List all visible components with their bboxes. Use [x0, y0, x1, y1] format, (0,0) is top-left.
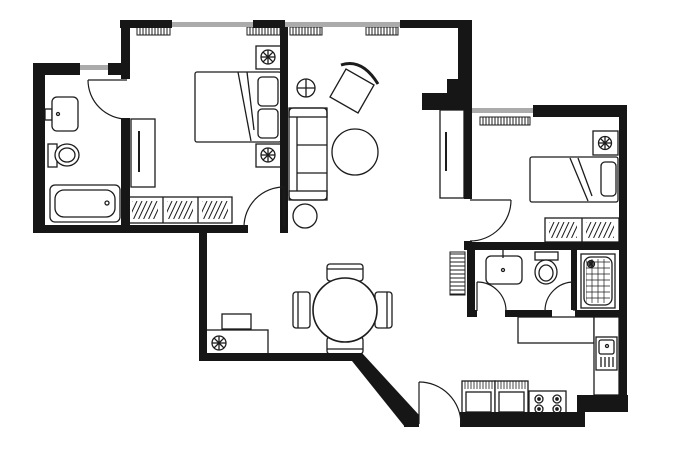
- floor-lamp: [297, 79, 315, 97]
- bathroom1-sink: [45, 97, 78, 131]
- bathroom2-toilet: [535, 252, 558, 284]
- sofa: [289, 108, 327, 200]
- stove: [529, 391, 566, 415]
- hall-wardrobe: [440, 110, 464, 198]
- master-nightstand-lamp-bottom: [256, 144, 281, 167]
- floor-plan: [0, 0, 675, 450]
- master-nightstand-lamp-top: [256, 46, 281, 69]
- master-bed: [195, 72, 281, 142]
- bathroom1-toilet: [48, 144, 79, 167]
- side-table: [293, 204, 317, 228]
- shower: [581, 254, 615, 308]
- bedroom2-bed: [530, 157, 618, 202]
- doors: [88, 80, 574, 424]
- desk: [206, 314, 268, 355]
- hall-radiator: [450, 252, 465, 295]
- bathroom2-sink: [486, 250, 522, 284]
- floor-plan-stage: [0, 0, 675, 450]
- bedroom2-closet: [542, 218, 626, 242]
- coffee-table: [332, 129, 378, 175]
- bedroom2-nightstand-lamp: [593, 131, 618, 155]
- dining-set: [293, 264, 392, 354]
- kitchen-counter-right: [594, 317, 619, 395]
- master-wardrobe: [131, 119, 155, 187]
- bathtub: [50, 185, 120, 222]
- armchair: [330, 64, 378, 113]
- hall-cabinet: [518, 317, 594, 343]
- kitchen-counters: [462, 381, 528, 415]
- walls: [33, 20, 628, 427]
- master-closet: [124, 197, 242, 223]
